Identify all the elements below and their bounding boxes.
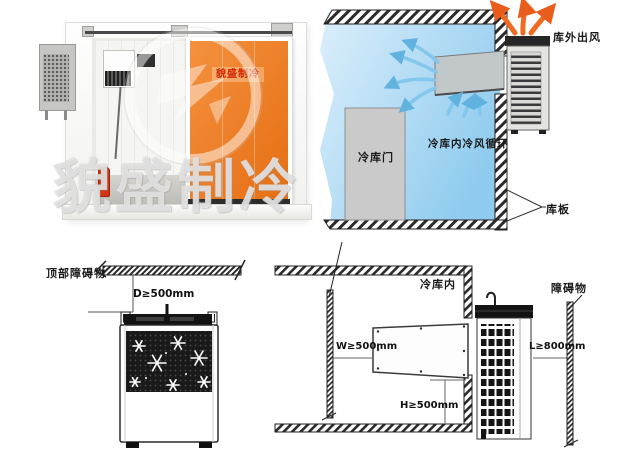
panel-leader-lines bbox=[507, 190, 546, 221]
left-obstacle-bar bbox=[327, 290, 333, 418]
room-wall-right-lower bbox=[464, 375, 472, 432]
wall-bottom bbox=[324, 220, 507, 229]
clearance-l-label: L≥800mm bbox=[529, 341, 585, 352]
condensing-unit bbox=[39, 44, 76, 111]
outdoor-air-label: 库外出风 bbox=[553, 29, 601, 45]
condenser-pipes bbox=[45, 110, 67, 120]
right-obstacle-label: 障碍物 bbox=[551, 280, 587, 296]
room-interior-label: 冷库内 bbox=[420, 276, 456, 292]
unit-pipe bbox=[487, 293, 495, 305]
clearance-d-label: D≥500mm bbox=[133, 288, 194, 300]
cold-room-photo: 貌盛制冷 貌盛制冷 bbox=[35, 14, 310, 226]
ceiling-obstacle-bar bbox=[103, 266, 241, 275]
circulation-label: 冷库内冷风循环 bbox=[428, 136, 509, 151]
cabinet-base bbox=[62, 204, 312, 220]
right-obstacle-bar bbox=[567, 302, 573, 445]
fire-extinguisher bbox=[98, 167, 110, 197]
room-wall-bottom bbox=[275, 424, 472, 432]
installation-guide-sheet: 貌盛制冷 貌盛制冷 bbox=[0, 0, 634, 453]
room-wall-right-upper bbox=[464, 266, 472, 318]
unit-foot bbox=[511, 130, 518, 134]
wall-right-lower bbox=[495, 94, 507, 230]
top-bar-slot bbox=[136, 317, 164, 321]
clearance-w-label: W≥500mm bbox=[336, 341, 397, 352]
top-obstacle-label: 顶部障碍物 bbox=[46, 265, 106, 281]
logo-watermark-icon bbox=[121, 24, 266, 169]
panel-label: 库板 bbox=[546, 201, 570, 217]
room-wall-top bbox=[275, 266, 472, 275]
outdoor-unit-cap bbox=[505, 36, 550, 46]
unit-foot bbox=[481, 434, 486, 439]
condenser-grille-icon bbox=[43, 54, 69, 102]
unit-foot bbox=[199, 442, 212, 448]
indoor-unit bbox=[435, 51, 504, 95]
cold-room-door-label: 冷库门 bbox=[358, 149, 394, 165]
unit-foot bbox=[539, 130, 546, 134]
wall-top bbox=[324, 10, 504, 24]
unit-front-grille-icon bbox=[126, 331, 212, 392]
outdoor-unit-grille-icon bbox=[511, 52, 541, 124]
top-bar-slot bbox=[170, 317, 194, 321]
unit-foot bbox=[126, 442, 139, 448]
clearance-h-label: H≥500mm bbox=[400, 400, 458, 411]
side-unit-grille-icon bbox=[481, 324, 514, 434]
